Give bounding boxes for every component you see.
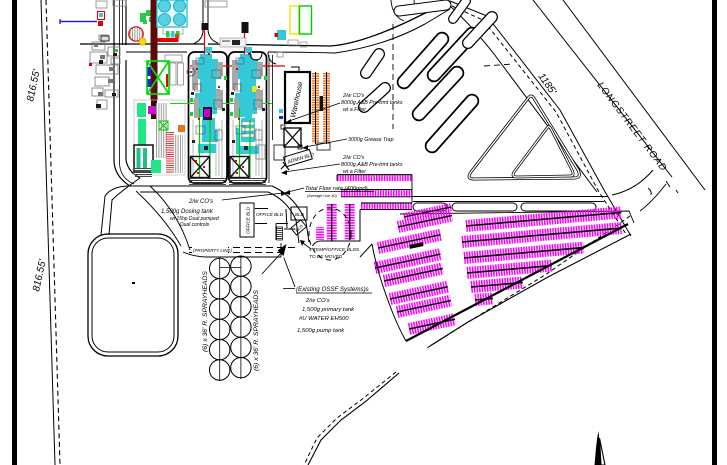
svg-text:1,500g primary tank: 1,500g primary tank bbox=[302, 307, 355, 313]
svg-text:Dual controls: Dual controls bbox=[180, 222, 210, 228]
svg-text:Total Flow rate (400gpd): Total Flow rate (400gpd) bbox=[305, 186, 368, 192]
svg-text:1,500g pump tank: 1,500g pump tank bbox=[297, 328, 345, 334]
svg-text:(Existing OSSF Systems)s: (Existing OSSF Systems)s bbox=[296, 286, 369, 293]
svg-text:wt a Filter: wt a Filter bbox=[343, 107, 366, 113]
svg-text:8000g,A&B Pre-trmt tanks: 8000g,A&B Pre-trmt tanks bbox=[341, 162, 403, 168]
svg-text:#U WATER EH500: #U WATER EH500 bbox=[299, 316, 349, 322]
svg-text:OFFICE BLD: OFFICE BLD bbox=[256, 212, 284, 217]
svg-text:3000g Grease Trap: 3000g Grease Trap bbox=[348, 137, 394, 143]
svg-text:4 TEMP/OFFICE BLDS: 4 TEMP/OFFICE BLDS bbox=[309, 247, 360, 253]
svg-text:(PROPERTY LINE): (PROPERTY LINE) bbox=[193, 248, 232, 253]
svg-text:(Average Use 40): (Average Use 40) bbox=[307, 194, 337, 198]
svg-text:2/w CO's: 2/w CO's bbox=[188, 199, 213, 205]
svg-text:TO BE MOVED: TO BE MOVED bbox=[309, 254, 343, 260]
svg-text:8000g,A&B Pre-trmt tanks: 8000g,A&B Pre-trmt tanks bbox=[341, 100, 403, 106]
svg-text:2/w CO's: 2/w CO's bbox=[305, 298, 330, 304]
svg-text:2/w CO's: 2/w CO's bbox=[342, 155, 365, 161]
svg-text:(6) x 36' R. SPRAYHEADS: (6) x 36' R. SPRAYHEADS bbox=[253, 290, 260, 371]
svg-text:BLD: BLD bbox=[295, 212, 305, 217]
svg-text:OFFICE BLD: OFFICE BLD bbox=[246, 206, 251, 234]
svg-text:(6) x 36' R. SPRAYHEADS: (6) x 36' R. SPRAYHEADS bbox=[202, 271, 209, 352]
svg-text:1,500g Dosing tank: 1,500g Dosing tank bbox=[161, 209, 214, 215]
svg-text:2/w CO's: 2/w CO's bbox=[342, 93, 365, 99]
svg-text:wt a Filter: wt a Filter bbox=[343, 169, 366, 175]
